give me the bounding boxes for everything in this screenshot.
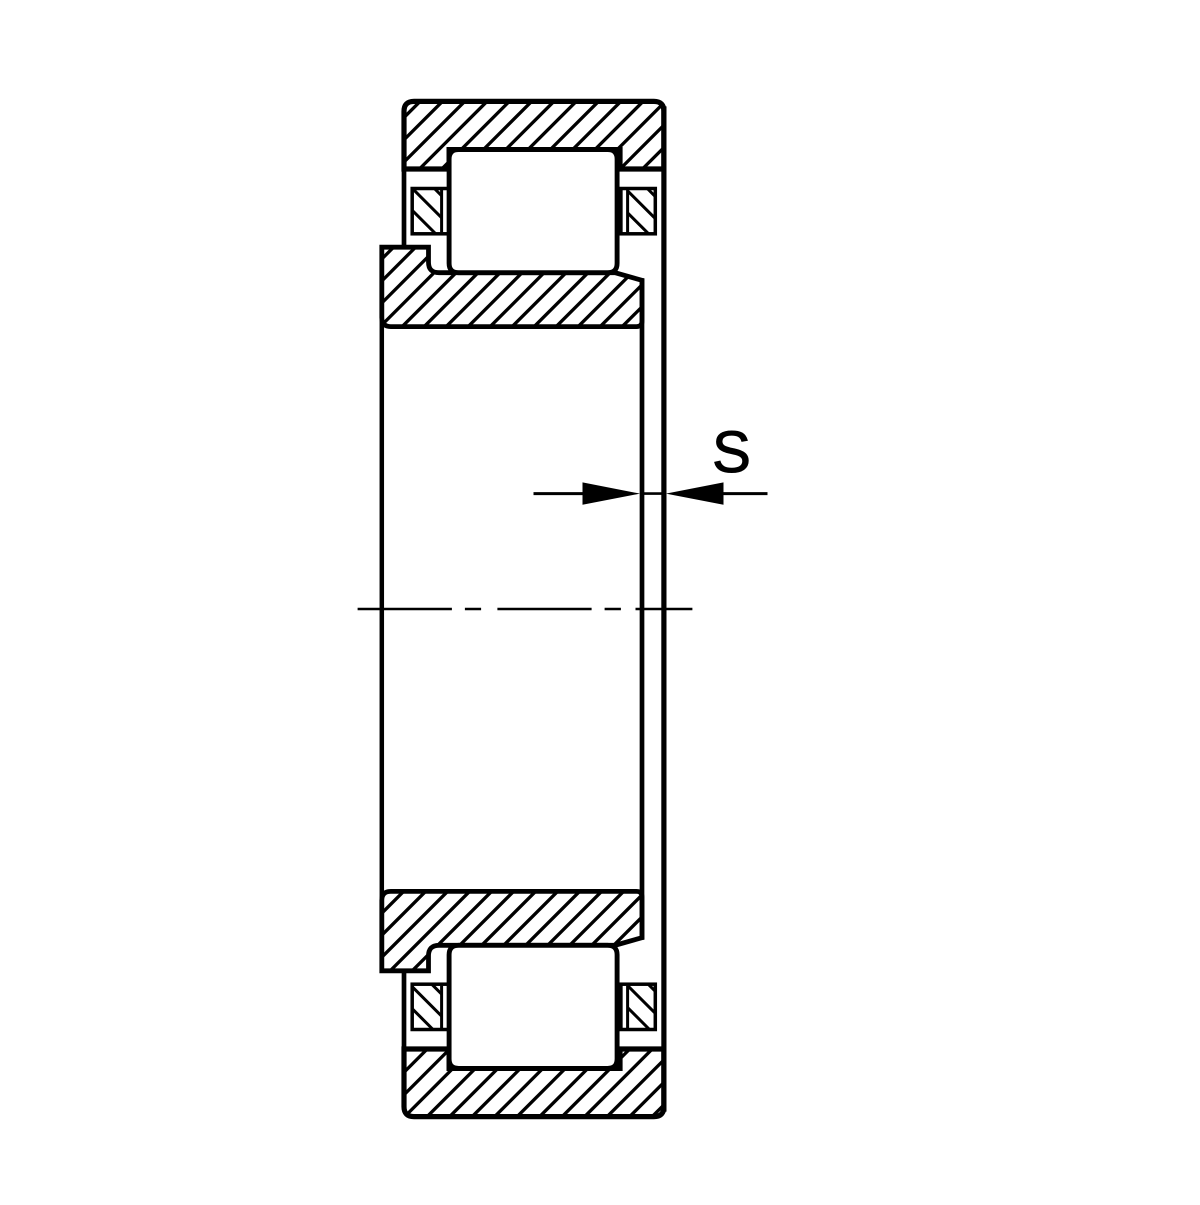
- svg-text:S: S: [712, 420, 751, 485]
